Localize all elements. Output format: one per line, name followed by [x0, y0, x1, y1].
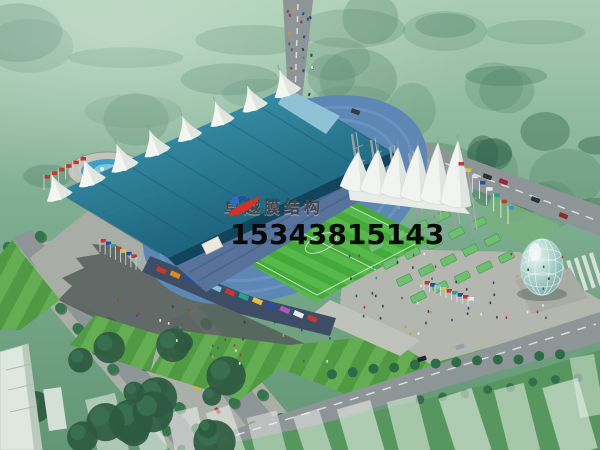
stadium-aerial-rendering: 卓越膜结构 15343815143 — [0, 0, 600, 450]
scene-art — [0, 0, 600, 450]
